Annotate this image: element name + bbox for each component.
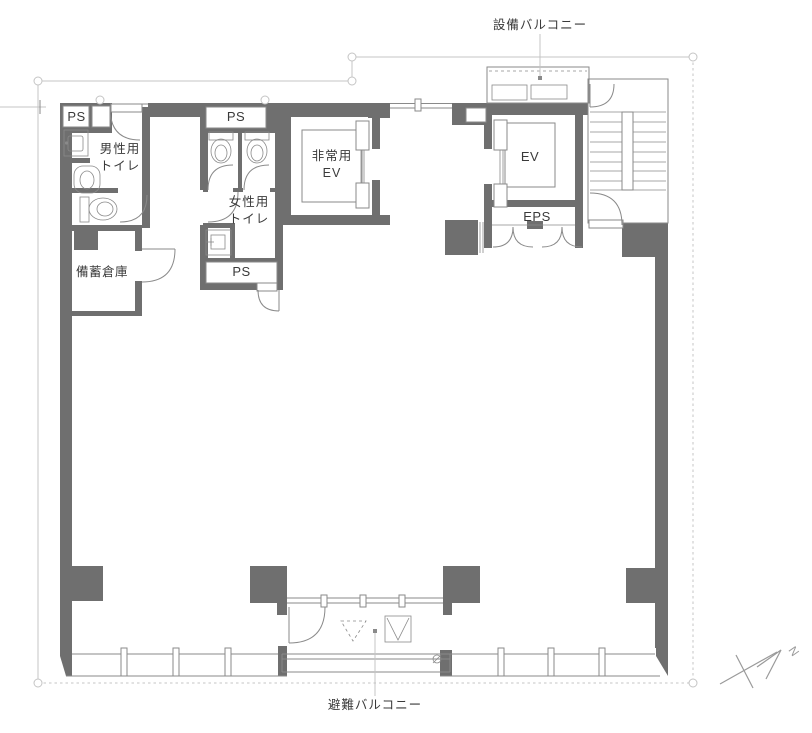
label-ps-womens-bottom: PS [206,263,277,281]
toilet-icon [80,197,117,222]
hatch-above-icon [341,621,366,641]
toilet-icon [245,132,269,163]
label-evacuation-balcony: 避難バルコニー [305,697,445,714]
toilet-icon [209,132,233,163]
column [250,566,287,603]
door-arc [110,108,140,140]
north-arrow: N [720,644,802,688]
door-arc [513,227,533,247]
evacuation-balcony [282,616,450,696]
wall-markers [96,96,269,104]
column [622,223,668,257]
label-elevator: EV [508,148,552,166]
label-ps-top-left: PS [63,108,90,126]
door-arc [258,290,279,311]
door-arc [289,607,325,643]
column [443,566,480,603]
stairs [588,79,668,228]
door-arc [142,249,175,282]
doors [110,104,582,643]
label-equipment-balcony: 設備バルコニー [470,17,610,34]
equipment-unit [492,85,527,100]
floor-plan-drawing: N [0,0,812,733]
north-label: N [786,644,802,659]
column [60,566,103,601]
balcony-railing [282,654,450,672]
label-emergency-elevator: 非常用 EV [301,148,363,182]
door-arc [493,227,513,247]
equipment-balcony [487,34,589,103]
label-mens-toilet: 男性用 トイレ [92,141,148,175]
door-arc [208,165,233,190]
sink-icon [206,230,231,255]
door-arc [244,165,269,190]
floor-plan: N 設備バルコニー PS PS PS 男性用 トイレ 女性用 トイレ 備蓄倉庫 … [0,0,812,733]
door-arc [590,84,614,107]
label-womens-toilet: 女性用 トイレ [219,194,279,228]
equipment-unit [531,85,567,99]
label-storage: 備蓄倉庫 [66,264,138,281]
column [445,220,478,255]
label-ps-womens-top: PS [206,108,266,126]
label-eps: EPS [507,208,567,226]
door-arc [542,227,562,247]
evacuation-hatch-icon [385,616,411,642]
stair-divider [622,112,633,190]
